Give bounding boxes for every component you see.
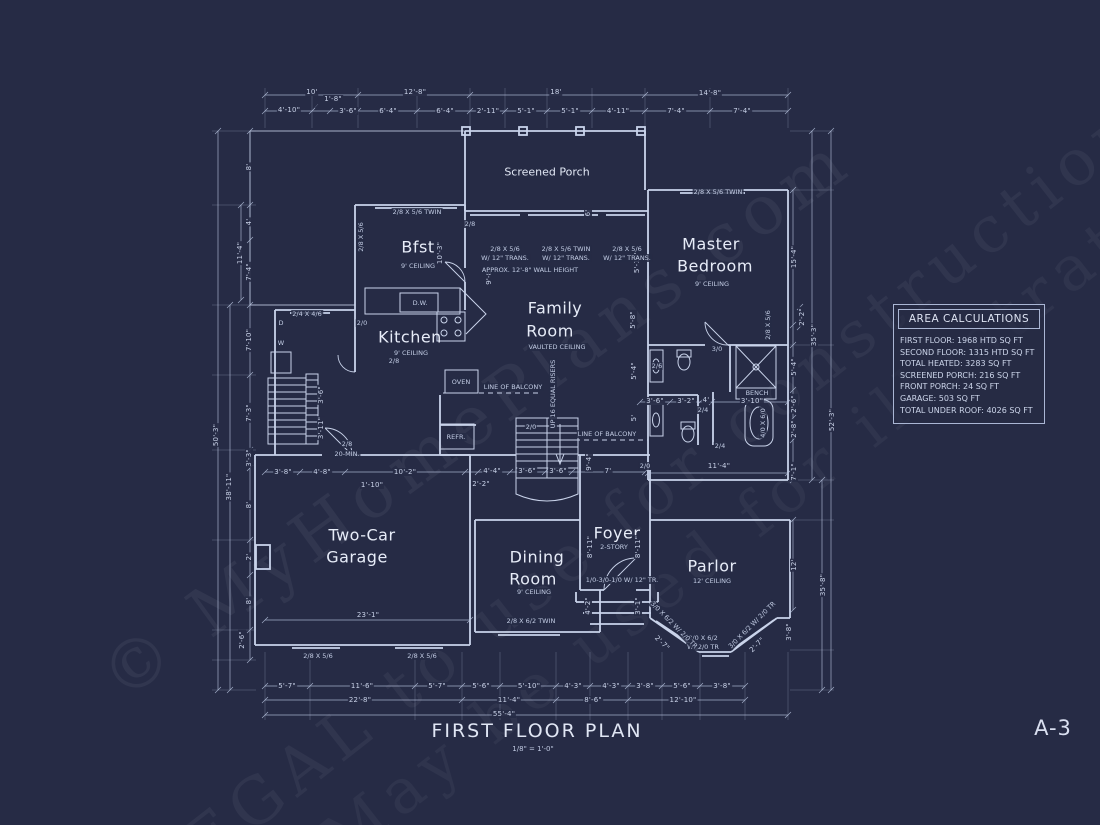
dimension-label: 10'-3" xyxy=(436,241,444,265)
dimension-label: 12' xyxy=(790,558,798,571)
dimension-label: 2'-2" xyxy=(471,480,491,488)
area-calculations-row: SECOND FLOOR: 1315 HTD SQ FT xyxy=(900,347,1038,359)
washer xyxy=(271,352,291,373)
dimension-label: 5'-7" xyxy=(277,682,297,690)
plan-annotation: 2/0 xyxy=(525,423,537,431)
dimension-label: 11'-4" xyxy=(707,462,731,470)
plan-annotation: 2/8 X 5/6 TWIN xyxy=(693,188,744,196)
dimension-label: 6' xyxy=(584,209,592,218)
room-label: Room xyxy=(526,322,574,341)
area-calculations-row: TOTAL UNDER ROOF: 4026 SQ FT xyxy=(900,405,1038,417)
plan-annotation: 1/0-3/0-1/0 W/ 12" TR. xyxy=(585,576,659,584)
room-label: Dining xyxy=(510,548,565,567)
dimension-label: 3'-11" xyxy=(317,416,325,440)
dimension-label: 5'-10" xyxy=(517,682,541,690)
dimension-label: 7'-4" xyxy=(245,262,253,282)
dimension-label: 14'-8" xyxy=(698,89,722,97)
plan-annotation: D xyxy=(277,319,284,327)
dimension-label: 3'-3" xyxy=(245,448,253,468)
area-calculations-row: SCREENED PORCH: 216 SQ FT xyxy=(900,370,1038,382)
dimension-label: 10'-2" xyxy=(393,468,417,476)
dimension-label: 4'-3" xyxy=(601,682,621,690)
dimension-label: 3'-6" xyxy=(548,467,568,475)
room-label: 2-STORY xyxy=(599,543,629,551)
room-label: 12' CEILING xyxy=(692,577,732,585)
plan-annotation: APPROX. 12'-8" WALL HEIGHT xyxy=(481,266,579,274)
room-label: Bedroom xyxy=(677,257,753,276)
dimension-label: 5'-4" xyxy=(630,361,638,381)
room-label: Parlor xyxy=(687,557,736,576)
dimension-label: 2'-2" xyxy=(798,307,806,327)
area-calculations-title: AREA CALCULATIONS xyxy=(898,309,1040,329)
plan-annotation: UP 16 EQUAL RISERS xyxy=(549,359,557,430)
room-label: Master xyxy=(682,235,740,254)
dimension-label: 5'-1" xyxy=(516,107,536,115)
room-label: Garage xyxy=(326,548,388,567)
dimension-label: 35'-3" xyxy=(810,323,818,347)
dimension-label: 1'-8" xyxy=(323,95,343,103)
plan-annotation: W xyxy=(277,339,285,347)
dimension-label: 8'-11" xyxy=(634,535,642,559)
dimension-label: 3'-6" xyxy=(645,397,665,405)
room-label: VAULTED CEILING xyxy=(527,343,586,351)
dimension-label: 5'-6" xyxy=(672,682,692,690)
area-calculations-row: FIRST FLOOR: 1968 HTD SQ FT xyxy=(900,335,1038,347)
toilet xyxy=(681,422,695,442)
dimension-label: 5'-7" xyxy=(427,682,447,690)
area-calculations-box: AREA CALCULATIONS FIRST FLOOR: 1968 HTD … xyxy=(893,304,1045,424)
room-label: 9' CEILING xyxy=(516,588,552,596)
dimension-label: 3'-6" xyxy=(338,107,358,115)
dimension-label: 8' xyxy=(245,501,253,510)
dimension-label: 2'-6" xyxy=(790,394,798,414)
plan-annotation: BENCH xyxy=(745,389,770,397)
dimension-label: 3'-8" xyxy=(712,682,732,690)
room-label: Kitchen xyxy=(378,328,442,347)
area-calculations-row: TOTAL HEATED: 3283 SQ FT xyxy=(900,358,1038,370)
dimension-label: 2'-8" xyxy=(790,419,798,439)
plan-annotation: 2/8 X 5/6 xyxy=(302,652,334,660)
dimension-label: 7'-4" xyxy=(666,107,686,115)
dimension-label: 38'-11" xyxy=(225,473,233,502)
room-label: Family xyxy=(528,299,582,318)
blueprint-sheet: © MyHomePlans.comILLEGAL to use for cons… xyxy=(0,0,1100,825)
plan-annotation: 2/8 X 5/6 xyxy=(406,652,438,660)
dimension-label: 3'-2" xyxy=(676,397,696,405)
room-label: Two-Car xyxy=(328,526,395,545)
dimension-label: 12'-10" xyxy=(669,696,698,704)
toilet xyxy=(677,350,691,370)
dimension-label: 3'-8" xyxy=(273,468,293,476)
dimension-label: 15'-4" xyxy=(790,245,798,269)
dimension-label: 5'-4" xyxy=(790,357,798,377)
dimension-label: 3'-1" xyxy=(634,596,642,616)
plan-annotation: 2/8 X 5/6 xyxy=(489,245,521,253)
plan-annotation: W/ 12" TRANS. xyxy=(480,254,530,262)
stairs xyxy=(268,374,578,501)
plan-annotation: 2/8 X 5/6 xyxy=(764,309,772,341)
fixtures xyxy=(271,288,776,449)
room-label: 9' CEILING xyxy=(400,262,436,270)
dimension-label: 8'-11" xyxy=(586,535,594,559)
dimension-label: 4'-10" xyxy=(277,106,301,114)
dimension-label: 22'-8" xyxy=(348,696,372,704)
room-label: 9' CEILING xyxy=(393,349,429,357)
dimension-label: 4'-2" xyxy=(584,596,592,616)
room-label: Screened Porch xyxy=(504,166,589,179)
dimension-label: 5' xyxy=(630,414,638,423)
plan-annotation: 2/4 xyxy=(697,406,709,414)
plan-annotation: OVEN xyxy=(451,378,471,386)
dimension-label: 12'-8" xyxy=(403,88,427,96)
dimension-label: 23'-1" xyxy=(356,611,380,619)
plan-title: FIRST FLOOR PLAN xyxy=(431,720,642,742)
dimension-label: 6'-4" xyxy=(378,107,398,115)
dimension-label: 7'-3" xyxy=(245,403,253,423)
dimension-label: 4'-11" xyxy=(606,107,630,115)
plan-annotation: 2/8 X 5/6 TWIN xyxy=(392,208,443,216)
dimension-label: 4'-4" xyxy=(482,467,502,475)
plan-annotation: 2/6 xyxy=(651,362,663,370)
room-label: Room xyxy=(509,570,557,589)
dimension-label: 7'-1" xyxy=(790,462,798,482)
plan-annotation: 3/0 xyxy=(711,345,723,353)
plan-annotation: 2/0 xyxy=(356,319,368,327)
plan-annotation: 2/8 X 5/6 xyxy=(357,221,365,253)
plan-annotation: D.W. xyxy=(412,299,429,307)
dimension-label: 1'-10" xyxy=(360,481,384,489)
dimension-label: 3'-10" xyxy=(740,397,764,405)
plan-annotation: 2/4 xyxy=(714,442,726,450)
plan-annotation: 2/4 X 4/6 xyxy=(291,310,323,318)
plan-scale: 1/8" = 1'-0" xyxy=(512,745,553,753)
room-label: 9' CEILING xyxy=(694,280,730,288)
plan-annotation: 2/8 xyxy=(341,440,353,448)
plan-annotation: LINE OF BALCONY xyxy=(483,383,544,391)
dimension-label: 8' xyxy=(245,597,253,606)
dimension-label: 4'-3" xyxy=(563,682,583,690)
dimension-label: 5'-8" xyxy=(629,310,637,330)
room-label: Bfst xyxy=(401,238,434,257)
dimension-label: 10' xyxy=(305,88,318,96)
dimension-label: 3'-6" xyxy=(317,385,325,405)
dimension-label: 55'-4" xyxy=(492,710,516,718)
dimension-label: 7' xyxy=(604,467,613,475)
plan-annotation: 2/8 X 5/6 xyxy=(611,245,643,253)
plan-annotation: LINE OF BALCONY xyxy=(577,430,638,438)
dimension-label: 3'-6" xyxy=(517,467,537,475)
plan-annotation: W/ 12" TRANS. xyxy=(541,254,591,262)
plan-annotation: 2/8 X 6/2 TWIN xyxy=(506,617,557,625)
dimension-label: 6'-4" xyxy=(435,107,455,115)
dimension-label: 52'-3" xyxy=(828,408,836,432)
dimension-label: 11'-6" xyxy=(350,682,374,690)
dimension-label: 4' xyxy=(702,396,711,404)
plan-annotation: 2/8 xyxy=(388,357,400,365)
dimension-label: 5'-1" xyxy=(560,107,580,115)
dimension-label: 3'-8" xyxy=(635,682,655,690)
plan-annotation: W/ 12" TRANS. xyxy=(602,254,652,262)
dimension-label: 7'-4" xyxy=(732,107,752,115)
area-calculations-row: GARAGE: 503 SQ FT xyxy=(900,393,1038,405)
dimension-label: 18' xyxy=(549,88,562,96)
dimension-label: 4'-8" xyxy=(312,468,332,476)
dimension-label: 7'-10" xyxy=(245,328,253,352)
deck-outline xyxy=(250,131,465,305)
dimension-label: 50'-3" xyxy=(212,423,220,447)
plan-annotation: 2/8 X 5/6 TWIN xyxy=(541,245,592,253)
dimension-label: 8'-6" xyxy=(583,696,603,704)
dimension-label: 11'-4" xyxy=(497,696,521,704)
dimension-label: 35'-8" xyxy=(819,573,827,597)
dimension-label: 11'-4" xyxy=(236,241,244,265)
plan-annotation: 20-MIN. xyxy=(333,450,360,458)
area-calculations-row: FRONT PORCH: 24 SQ FT xyxy=(900,381,1038,393)
plan-annotation: REFR. xyxy=(446,433,467,441)
dimension-label: 2'-11" xyxy=(476,107,500,115)
dimension-label: 3'-8" xyxy=(785,622,793,642)
plan-annotation: 2/8 xyxy=(464,220,476,228)
dimension-label: 5'-6" xyxy=(471,682,491,690)
area-calculations-rows: FIRST FLOOR: 1968 HTD SQ FTSECOND FLOOR:… xyxy=(894,333,1044,423)
dimension-label: 2' xyxy=(245,553,253,562)
dimension-label: 9'-4" xyxy=(585,452,593,472)
plan-annotation: 2/0 xyxy=(639,462,651,470)
sheet-number: A-3 xyxy=(1034,716,1072,740)
plan-annotation: 4/0 X 6/0 xyxy=(759,407,767,439)
dimension-label: 8' xyxy=(245,163,253,172)
dimension-label: 4' xyxy=(245,218,253,227)
dimension-label: 2'-6" xyxy=(238,630,246,650)
